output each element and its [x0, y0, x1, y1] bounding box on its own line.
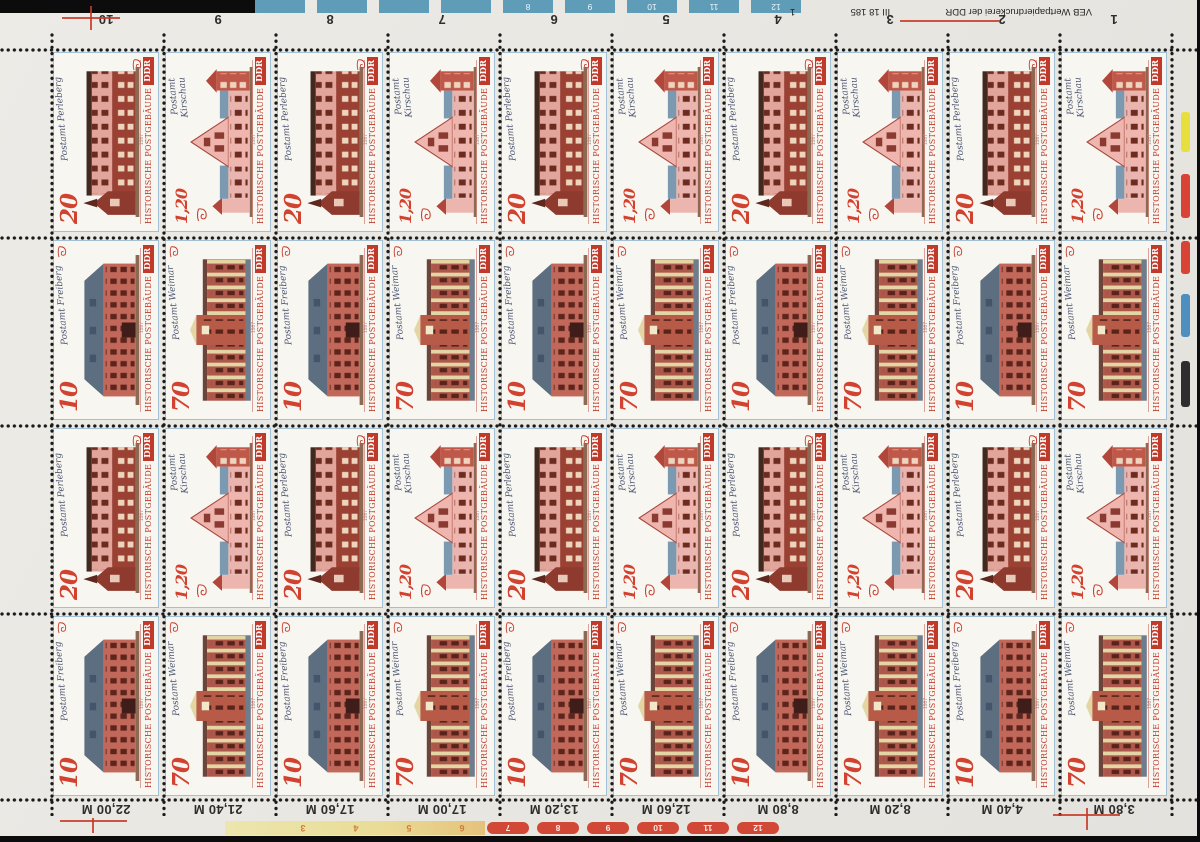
perforation-row — [0, 48, 1197, 52]
cumulative-value: 8,20 M — [834, 802, 946, 817]
stamp-caption: HISTORISCHE POSTGEBÄUDE DDR — [364, 624, 379, 788]
caption-text: HISTORISCHE POSTGEBÄUDE — [704, 88, 713, 224]
control-strip-red-segment: 12 — [737, 822, 779, 834]
stamp-caption: HISTORISCHE POSTGEBÄUDE DDR — [924, 624, 939, 788]
stamp-design: 10 Postamt Freiberg 1987 HISTORISCHE POS… — [950, 617, 1054, 795]
stamp-caption: HISTORISCHE POSTGEBÄUDE DDR — [700, 624, 715, 788]
stamp-70pf-weimar: 70 Postamt Weimar 1987 HISTORISCHE POSTG… — [1061, 616, 1167, 796]
stamp-1.20m-kirschau: 1,20 PostamtKirschau 1987 — [389, 428, 495, 608]
stamp-caption: HISTORISCHE POSTGEBÄUDE DDR — [588, 436, 603, 600]
caption-text: HISTORISCHE POSTGEBÄUDE — [144, 652, 153, 788]
stamp-caption: HISTORISCHE POSTGEBÄUDE DDR — [364, 436, 379, 600]
stamp-design: 10 Postamt Freiberg 1987 HISTORISCHE POS… — [278, 617, 382, 795]
building-illustration — [302, 443, 366, 593]
stamp-denomination: 1,20 — [844, 189, 863, 224]
country-label: DDR — [591, 245, 602, 273]
stamp-70pf-weimar: 70 Postamt Weimar 1987 HISTORISCHE POSTG… — [837, 616, 943, 796]
building-illustration — [414, 631, 478, 781]
stamp-10pf-freiberg: 10 Postamt Freiberg 1987 HISTORISCHE POS… — [277, 240, 383, 420]
stamp-building-name: Postamt Perleberg — [950, 77, 967, 162]
post-horn-icon — [617, 245, 628, 259]
country-label: DDR — [1039, 57, 1050, 85]
caption-text: HISTORISCHE POSTGEBÄUDE — [368, 88, 377, 224]
stamp-design: 70 Postamt Weimar 1987 HISTORISCHE POSTG… — [1062, 617, 1166, 795]
stamp-design: 20 Postamt Perleberg 1987 HISTORISCHE PO… — [726, 429, 830, 607]
stamp-building-name: Postamt Perleberg — [726, 77, 743, 162]
building-illustration — [78, 631, 142, 781]
country-label: DDR — [815, 621, 826, 649]
imprint-text: VEB Wertpapierdruckerei der DDR — [945, 6, 1092, 17]
photo-edge-bottom — [0, 836, 1200, 842]
stamp-1.20m-kirschau: 1,20 PostamtKirschau 1987 — [165, 52, 271, 232]
stamp-design: 1,20 PostamtKirschau 1987 — [390, 429, 494, 607]
country-label: DDR — [703, 245, 714, 273]
stamp-20pf-perleberg: 20 Postamt Perleberg 1987 HISTORISCHE PO… — [277, 428, 383, 608]
stamp-design: 20 Postamt Perleberg 1987 HISTORISCHE PO… — [502, 53, 606, 231]
printer-imprint: VEB Wertpapierdruckerei der DDR III 18 1… — [790, 4, 1092, 19]
stamp-building-name: Postamt Perleberg — [502, 77, 519, 162]
stamp-caption: HISTORISCHE POSTGEBÄUDE DDR — [252, 60, 267, 224]
country-label: DDR — [815, 57, 826, 85]
country-label: DDR — [367, 57, 378, 85]
control-strip-number: 7 — [487, 822, 529, 834]
caption-text: HISTORISCHE POSTGEBÄUDE — [704, 652, 713, 788]
stamp-building-name: PostamtKirschau — [1064, 452, 1087, 494]
stamp-design: 70 Postamt Weimar 1987 HISTORISCHE POSTG… — [838, 241, 942, 419]
building-illustration — [750, 631, 814, 781]
country-label: DDR — [815, 433, 826, 461]
stamp-building-name: Postamt Perleberg — [54, 453, 71, 538]
stamp-design: 70 Postamt Weimar 1987 HISTORISCHE POSTG… — [166, 241, 270, 419]
caption-text: HISTORISCHE POSTGEBÄUDE — [592, 652, 601, 788]
building-illustration — [526, 631, 590, 781]
post-horn-icon — [169, 245, 180, 259]
perforation-column — [610, 33, 614, 816]
building-illustration — [638, 443, 702, 593]
country-label: DDR — [703, 433, 714, 461]
registration-mark-bottom-left-tick — [92, 818, 94, 833]
column-number: 8 — [274, 12, 386, 27]
stamp-caption: HISTORISCHE POSTGEBÄUDE DDR — [476, 248, 491, 412]
stamp-caption: HISTORISCHE POSTGEBÄUDE DDR — [252, 248, 267, 412]
stamp-20pf-perleberg: 20 Postamt Perleberg 1987 HISTORISCHE PO… — [949, 428, 1055, 608]
building-illustration — [78, 443, 142, 593]
caption-text: HISTORISCHE POSTGEBÄUDE — [592, 464, 601, 600]
cumulative-value: 4,40 M — [946, 802, 1058, 817]
stamp-caption: HISTORISCHE POSTGEBÄUDE DDR — [700, 436, 715, 600]
stamp-20pf-perleberg: 20 Postamt Perleberg 1987 HISTORISCHE PO… — [949, 52, 1055, 232]
caption-text: HISTORISCHE POSTGEBÄUDE — [1152, 276, 1161, 412]
perforation-row — [0, 236, 1197, 240]
stamp-design: 10 Postamt Freiberg 1987 HISTORISCHE POS… — [726, 617, 830, 795]
perforation-column — [386, 33, 390, 816]
caption-text: HISTORISCHE POSTGEBÄUDE — [368, 464, 377, 600]
stamp-caption: HISTORISCHE POSTGEBÄUDE DDR — [812, 624, 827, 788]
stamp-building-name: Postamt Weimar — [615, 265, 631, 340]
stamp-design: 1,20 PostamtKirschau 1987 — [614, 429, 718, 607]
caption-text: HISTORISCHE POSTGEBÄUDE — [480, 464, 489, 600]
country-label: DDR — [1039, 245, 1050, 273]
control-strip-red-segment: 9 — [587, 822, 629, 834]
building-illustration — [1086, 631, 1150, 781]
stamp-building-name: Postamt Freiberg — [951, 265, 968, 345]
stamp-caption: HISTORISCHE POSTGEBÄUDE DDR — [924, 248, 939, 412]
stamp-denomination: 1,20 — [844, 565, 863, 600]
stamp-design: 1,20 PostamtKirschau 1987 — [838, 429, 942, 607]
perforation-column — [498, 33, 502, 816]
country-label: DDR — [367, 245, 378, 273]
building-illustration — [862, 255, 926, 405]
post-horn-icon — [57, 245, 68, 259]
country-label: DDR — [1039, 621, 1050, 649]
country-label: DDR — [1151, 57, 1162, 85]
color-bar — [1181, 174, 1190, 218]
stamp-building-name: Postamt Freiberg — [503, 641, 520, 721]
country-label: DDR — [255, 245, 266, 273]
cumulative-value: 17,00 M — [386, 802, 498, 817]
stamp-caption: HISTORISCHE POSTGEBÄUDE DDR — [812, 248, 827, 412]
caption-text: HISTORISCHE POSTGEBÄUDE — [256, 276, 265, 412]
stamp-building-name: Postamt Freiberg — [55, 641, 72, 721]
stamp-denomination: 1,20 — [172, 565, 191, 600]
stamp-building-name: Postamt Perleberg — [950, 453, 967, 538]
building-illustration — [1086, 255, 1150, 405]
stamp-caption: HISTORISCHE POSTGEBÄUDE DDR — [588, 60, 603, 224]
country-label: DDR — [143, 621, 154, 649]
stamp-denomination: 1,20 — [1068, 189, 1087, 224]
stamp-building-name: Postamt Freiberg — [503, 265, 520, 345]
country-label: DDR — [479, 621, 490, 649]
registration-mark-top-left-tick — [90, 6, 92, 30]
registration-mark-top-right-line — [900, 20, 1000, 22]
building-illustration — [750, 443, 814, 593]
post-horn-icon — [729, 245, 740, 259]
control-strip-number: 10 — [637, 822, 679, 834]
post-horn-icon — [953, 621, 964, 635]
stamp-10pf-freiberg: 10 Postamt Freiberg 1987 HISTORISCHE POS… — [53, 240, 159, 420]
stamp-70pf-weimar: 70 Postamt Weimar 1987 HISTORISCHE POSTG… — [389, 240, 495, 420]
country-label: DDR — [143, 245, 154, 273]
caption-text: HISTORISCHE POSTGEBÄUDE — [1152, 464, 1161, 600]
stamp-caption: HISTORISCHE POSTGEBÄUDE DDR — [924, 436, 939, 600]
stamp-denomination: 1,20 — [1068, 565, 1087, 600]
stamp-denomination: 1,20 — [396, 189, 415, 224]
stamp-caption: HISTORISCHE POSTGEBÄUDE DDR — [364, 248, 379, 412]
stamp-70pf-weimar: 70 Postamt Weimar 1987 HISTORISCHE POSTG… — [165, 240, 271, 420]
stamp-building-name: PostamtKirschau — [1064, 76, 1087, 118]
stamp-building-name: Postamt Weimar — [839, 641, 855, 716]
building-illustration — [526, 255, 590, 405]
perforation-row — [0, 612, 1197, 616]
stamp-design: 70 Postamt Weimar 1987 HISTORISCHE POSTG… — [390, 241, 494, 419]
caption-text: HISTORISCHE POSTGEBÄUDE — [592, 88, 601, 224]
building-illustration — [862, 67, 926, 217]
stamp-caption: HISTORISCHE POSTGEBÄUDE DDR — [1036, 248, 1051, 412]
stamp-70pf-weimar: 70 Postamt Weimar 1987 HISTORISCHE POSTG… — [613, 616, 719, 796]
stamp-building-name: PostamtKirschau — [616, 452, 639, 494]
perforation-column — [722, 33, 726, 816]
stamp-building-name: Postamt Perleberg — [278, 453, 295, 538]
building-illustration — [1086, 443, 1150, 593]
country-label: DDR — [367, 621, 378, 649]
stamp-building-name: PostamtKirschau — [168, 76, 191, 118]
stamp-building-name: Postamt Perleberg — [726, 453, 743, 538]
caption-text: HISTORISCHE POSTGEBÄUDE — [144, 276, 153, 412]
country-label: DDR — [479, 433, 490, 461]
caption-text: HISTORISCHE POSTGEBÄUDE — [816, 276, 825, 412]
stamp-caption: HISTORISCHE POSTGEBÄUDE DDR — [476, 60, 491, 224]
caption-text: HISTORISCHE POSTGEBÄUDE — [816, 88, 825, 224]
building-illustration — [190, 67, 254, 217]
stamp-caption: HISTORISCHE POSTGEBÄUDE DDR — [140, 60, 155, 224]
stamp-20pf-perleberg: 20 Postamt Perleberg 1987 HISTORISCHE PO… — [501, 428, 607, 608]
stamp-1.20m-kirschau: 1,20 PostamtKirschau 1987 — [837, 428, 943, 608]
country-label: DDR — [927, 621, 938, 649]
control-strip-number: 11 — [687, 822, 729, 834]
stamp-10pf-freiberg: 10 Postamt Freiberg 1987 HISTORISCHE POS… — [53, 616, 159, 796]
column-number: 10 — [50, 12, 162, 27]
stamp-caption: HISTORISCHE POSTGEBÄUDE DDR — [1148, 624, 1163, 788]
caption-text: HISTORISCHE POSTGEBÄUDE — [928, 276, 937, 412]
country-label: DDR — [1151, 621, 1162, 649]
caption-text: HISTORISCHE POSTGEBÄUDE — [256, 88, 265, 224]
post-horn-icon — [281, 245, 292, 259]
stamp-1.20m-kirschau: 1,20 PostamtKirschau 1987 — [837, 52, 943, 232]
caption-text: HISTORISCHE POSTGEBÄUDE — [816, 652, 825, 788]
building-illustration — [78, 255, 142, 405]
building-illustration — [974, 255, 1038, 405]
cumulative-value: 13,20 M — [498, 802, 610, 817]
caption-text: HISTORISCHE POSTGEBÄUDE — [256, 464, 265, 600]
stamp-design: 70 Postamt Weimar 1987 HISTORISCHE POSTG… — [614, 241, 718, 419]
stamp-building-name: Postamt Weimar — [1063, 265, 1079, 340]
stamp-70pf-weimar: 70 Postamt Weimar 1987 HISTORISCHE POSTG… — [837, 240, 943, 420]
color-bar — [1181, 112, 1190, 152]
stamp-building-name: PostamtKirschau — [840, 452, 863, 494]
stamp-20pf-perleberg: 20 Postamt Perleberg 1987 HISTORISCHE PO… — [725, 52, 831, 232]
stamp-building-name: Postamt Weimar — [167, 641, 183, 716]
stamp-design: 70 Postamt Weimar 1987 HISTORISCHE POSTG… — [1062, 241, 1166, 419]
stamp-design: 10 Postamt Freiberg 1987 HISTORISCHE POS… — [502, 617, 606, 795]
stamp-1.20m-kirschau: 1,20 PostamtKirschau 1987 — [1061, 52, 1167, 232]
stamp-caption: HISTORISCHE POSTGEBÄUDE DDR — [1036, 60, 1051, 224]
country-label: DDR — [479, 245, 490, 273]
stamp-caption: HISTORISCHE POSTGEBÄUDE DDR — [1148, 60, 1163, 224]
building-illustration — [638, 255, 702, 405]
stamp-1.20m-kirschau: 1,20 PostamtKirschau 1987 — [165, 428, 271, 608]
building-illustration — [302, 67, 366, 217]
country-label: DDR — [591, 57, 602, 85]
stamp-20pf-perleberg: 20 Postamt Perleberg 1987 HISTORISCHE PO… — [277, 52, 383, 232]
country-label: DDR — [255, 433, 266, 461]
stamp-building-name: PostamtKirschau — [392, 452, 415, 494]
stamp-design: 20 Postamt Perleberg 1987 HISTORISCHE PO… — [950, 53, 1054, 231]
stamp-design: 20 Postamt Perleberg 1987 HISTORISCHE PO… — [726, 53, 830, 231]
country-label: DDR — [255, 621, 266, 649]
caption-text: HISTORISCHE POSTGEBÄUDE — [928, 652, 937, 788]
stamp-10pf-freiberg: 10 Postamt Freiberg 1987 HISTORISCHE POS… — [725, 240, 831, 420]
stamp-caption: HISTORISCHE POSTGEBÄUDE DDR — [588, 624, 603, 788]
column-number: 6 — [498, 12, 610, 27]
building-illustration — [190, 255, 254, 405]
stamp-design: 1,20 PostamtKirschau 1987 — [1062, 429, 1166, 607]
country-label: DDR — [927, 57, 938, 85]
perforation-column — [50, 33, 54, 816]
building-illustration — [302, 255, 366, 405]
stamp-caption: HISTORISCHE POSTGEBÄUDE DDR — [1036, 436, 1051, 600]
stamp-design: 70 Postamt Weimar 1987 HISTORISCHE POSTG… — [166, 617, 270, 795]
building-illustration — [414, 255, 478, 405]
stamp-70pf-weimar: 70 Postamt Weimar 1987 HISTORISCHE POSTG… — [165, 616, 271, 796]
imprint-form-number: III 18 185 — [851, 6, 891, 17]
stamp-70pf-weimar: 70 Postamt Weimar 1987 HISTORISCHE POSTG… — [613, 240, 719, 420]
post-horn-icon — [841, 621, 852, 635]
control-strip-number: 6 — [447, 823, 477, 833]
building-illustration — [862, 631, 926, 781]
country-label: DDR — [1039, 433, 1050, 461]
caption-text: HISTORISCHE POSTGEBÄUDE — [704, 276, 713, 412]
caption-text: HISTORISCHE POSTGEBÄUDE — [1040, 88, 1049, 224]
stamp-design: 70 Postamt Weimar 1987 HISTORISCHE POSTG… — [614, 617, 718, 795]
post-horn-icon — [505, 245, 516, 259]
stamp-building-name: PostamtKirschau — [840, 76, 863, 118]
imprint-sheet-counter: 1 — [790, 6, 795, 17]
perforation-column — [834, 33, 838, 816]
stamp-caption: HISTORISCHE POSTGEBÄUDE DDR — [588, 248, 603, 412]
stamp-design: 1,20 PostamtKirschau 1987 — [166, 429, 270, 607]
building-illustration — [1086, 67, 1150, 217]
stamp-caption: HISTORISCHE POSTGEBÄUDE DDR — [924, 60, 939, 224]
building-illustration — [750, 67, 814, 217]
stamp-design: 1,20 PostamtKirschau 1987 — [614, 53, 718, 231]
building-illustration — [974, 443, 1038, 593]
stamp-caption: HISTORISCHE POSTGEBÄUDE DDR — [1148, 248, 1163, 412]
stamp-design: 20 Postamt Perleberg 1987 HISTORISCHE PO… — [278, 53, 382, 231]
stamp-10pf-freiberg: 10 Postamt Freiberg 1987 HISTORISCHE POS… — [501, 240, 607, 420]
stamp-70pf-weimar: 70 Postamt Weimar 1987 HISTORISCHE POSTG… — [389, 616, 495, 796]
stamp-caption: HISTORISCHE POSTGEBÄUDE DDR — [140, 624, 155, 788]
stamp-20pf-perleberg: 20 Postamt Perleberg 1987 HISTORISCHE PO… — [725, 428, 831, 608]
caption-text: HISTORISCHE POSTGEBÄUDE — [144, 88, 153, 224]
control-strip-number: 3 — [288, 823, 318, 833]
stamp-design: 1,20 PostamtKirschau 1987 — [838, 53, 942, 231]
control-strip-number: 5 — [394, 823, 424, 833]
stamp-10pf-freiberg: 10 Postamt Freiberg 1987 HISTORISCHE POS… — [949, 616, 1055, 796]
cumulative-value: 22,00 M — [50, 802, 162, 817]
stamp-building-name: Postamt Freiberg — [55, 265, 72, 345]
stamp-design: 10 Postamt Freiberg 1987 HISTORISCHE POS… — [726, 241, 830, 419]
country-label: DDR — [703, 57, 714, 85]
control-strip-number: 12 — [737, 822, 779, 834]
stamp-caption: HISTORISCHE POSTGEBÄUDE DDR — [700, 60, 715, 224]
stamp-building-name: PostamtKirschau — [616, 76, 639, 118]
cumulative-value: 8,80 M — [722, 802, 834, 817]
stamp-denomination: 1,20 — [396, 565, 415, 600]
country-label: DDR — [143, 433, 154, 461]
country-label: DDR — [815, 245, 826, 273]
stamp-building-name: Postamt Freiberg — [727, 265, 744, 345]
stamp-design: 10 Postamt Freiberg 1987 HISTORISCHE POS… — [502, 241, 606, 419]
post-horn-icon — [953, 245, 964, 259]
caption-text: HISTORISCHE POSTGEBÄUDE — [928, 88, 937, 224]
caption-text: HISTORISCHE POSTGEBÄUDE — [816, 464, 825, 600]
caption-text: HISTORISCHE POSTGEBÄUDE — [480, 652, 489, 788]
post-horn-icon — [281, 621, 292, 635]
building-illustration — [526, 443, 590, 593]
control-strip-number: 9 — [587, 822, 629, 834]
country-label: DDR — [479, 57, 490, 85]
caption-text: HISTORISCHE POSTGEBÄUDE — [480, 276, 489, 412]
caption-text: HISTORISCHE POSTGEBÄUDE — [1040, 276, 1049, 412]
building-illustration — [750, 255, 814, 405]
caption-text: HISTORISCHE POSTGEBÄUDE — [928, 464, 937, 600]
stamp-70pf-weimar: 70 Postamt Weimar 1987 HISTORISCHE POSTG… — [1061, 240, 1167, 420]
cumulative-value: 17,60 M — [274, 802, 386, 817]
stamp-building-name: Postamt Freiberg — [279, 265, 296, 345]
stamp-building-name: Postamt Weimar — [1063, 641, 1079, 716]
building-illustration — [414, 443, 478, 593]
building-illustration — [78, 67, 142, 217]
stamp-building-name: Postamt Weimar — [839, 265, 855, 340]
stamp-building-name: Postamt Freiberg — [727, 641, 744, 721]
stamp-design: 20 Postamt Perleberg 1987 HISTORISCHE PO… — [950, 429, 1054, 607]
country-label: DDR — [927, 433, 938, 461]
stamp-design: 10 Postamt Freiberg 1987 HISTORISCHE POS… — [54, 617, 158, 795]
stamp-caption: HISTORISCHE POSTGEBÄUDE DDR — [700, 248, 715, 412]
caption-text: HISTORISCHE POSTGEBÄUDE — [144, 464, 153, 600]
post-horn-icon — [841, 245, 852, 259]
building-illustration — [974, 631, 1038, 781]
stamp-building-name: Postamt Weimar — [167, 265, 183, 340]
stamp-caption: HISTORISCHE POSTGEBÄUDE DDR — [476, 436, 491, 600]
stamp-design: 20 Postamt Perleberg 1987 HISTORISCHE PO… — [54, 53, 158, 231]
cumulative-value: 12,60 M — [610, 802, 722, 817]
control-strip-number: 4 — [341, 823, 371, 833]
caption-text: HISTORISCHE POSTGEBÄUDE — [1040, 464, 1049, 600]
stamp-building-name: Postamt Perleberg — [278, 77, 295, 162]
stamp-building-name: Postamt Weimar — [391, 265, 407, 340]
caption-text: HISTORISCHE POSTGEBÄUDE — [480, 88, 489, 224]
post-horn-icon — [617, 621, 628, 635]
stamp-1.20m-kirschau: 1,20 PostamtKirschau 1987 — [613, 52, 719, 232]
building-illustration — [974, 67, 1038, 217]
stamp-building-name: Postamt Weimar — [615, 641, 631, 716]
stamp-10pf-freiberg: 10 Postamt Freiberg 1987 HISTORISCHE POS… — [501, 616, 607, 796]
control-strip-red-segment: 10 — [637, 822, 679, 834]
country-label: DDR — [591, 433, 602, 461]
stamp-building-name: PostamtKirschau — [392, 76, 415, 118]
country-label: DDR — [255, 57, 266, 85]
stamp-20pf-perleberg: 20 Postamt Perleberg 1987 HISTORISCHE PO… — [53, 428, 159, 608]
building-illustration — [862, 443, 926, 593]
country-label: DDR — [1151, 245, 1162, 273]
country-label: DDR — [367, 433, 378, 461]
control-strip-red-segment: 11 — [687, 822, 729, 834]
caption-text: HISTORISCHE POSTGEBÄUDE — [256, 652, 265, 788]
building-illustration — [638, 631, 702, 781]
stamp-caption: HISTORISCHE POSTGEBÄUDE DDR — [812, 436, 827, 600]
post-horn-icon — [729, 621, 740, 635]
building-illustration — [190, 443, 254, 593]
stamp-building-name: Postamt Freiberg — [279, 641, 296, 721]
post-horn-icon — [393, 621, 404, 635]
stamp-building-name: Postamt Weimar — [391, 641, 407, 716]
control-strip-red-segment: 7 — [487, 822, 529, 834]
control-strip-number: 8 — [537, 822, 579, 834]
perforation-column — [1058, 33, 1062, 816]
building-illustration — [638, 67, 702, 217]
stamp-1.20m-kirschau: 1,20 PostamtKirschau 1987 — [1061, 428, 1167, 608]
